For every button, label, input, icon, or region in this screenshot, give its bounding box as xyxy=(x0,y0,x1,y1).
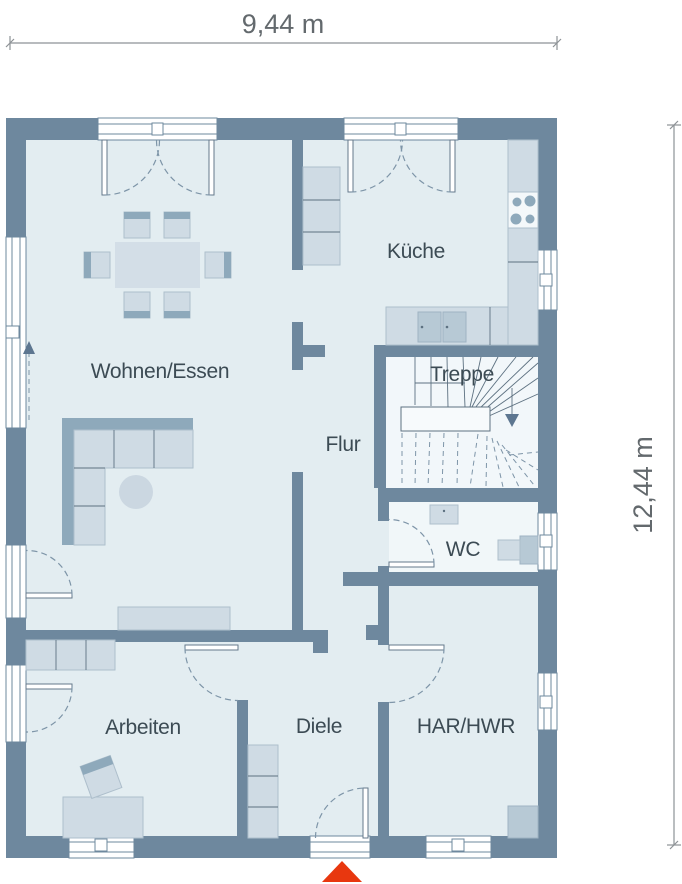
wall-foyer-stub xyxy=(366,625,378,640)
window-utility xyxy=(538,673,557,730)
wall-exterior-right xyxy=(538,118,557,858)
window-handle-icon xyxy=(395,123,406,135)
wall-office-foyer xyxy=(237,700,248,838)
window-kitchen xyxy=(538,250,557,310)
wall-kitchen-living xyxy=(292,140,303,270)
coffee-table xyxy=(119,475,153,509)
floor-plan-svg: 9,44 m 12,44 m xyxy=(0,0,682,884)
room-label-staircase: Treppe xyxy=(430,363,494,386)
kitchen-counter-right xyxy=(508,140,538,345)
dimension-right: 12,44 m xyxy=(628,121,681,849)
sideboard-living xyxy=(118,607,230,630)
office-desk xyxy=(63,797,143,838)
office-cabinet xyxy=(26,640,115,670)
dining-table xyxy=(115,242,200,288)
wc-toilet xyxy=(498,536,538,564)
wall-foyer-utility-lower xyxy=(378,702,389,838)
window-wc xyxy=(538,513,557,570)
wall-living-office-endcap xyxy=(313,630,328,653)
window-handle-icon xyxy=(6,326,19,338)
dimension-width-label: 9,44 m xyxy=(242,9,325,39)
kitchen-pantry-shelf xyxy=(303,167,340,265)
wall-stub-t-arm xyxy=(303,345,325,357)
window-handle-icon xyxy=(452,839,464,851)
room-label-foyer: Diele xyxy=(296,715,342,738)
entrance-arrow-icon xyxy=(322,861,362,882)
staircase-landing xyxy=(401,407,490,431)
window-utility-bottom xyxy=(426,836,491,858)
wall-wc-bottom xyxy=(343,572,540,586)
wall-kitchen-bottom xyxy=(374,345,540,357)
wall-wc-left-upper xyxy=(378,502,389,521)
room-label-kitchen: Küche xyxy=(387,240,445,263)
window-handle-icon xyxy=(540,274,552,286)
wall-hall-living xyxy=(292,472,303,632)
room-label-wc: WC xyxy=(446,538,481,561)
window-handle-icon xyxy=(540,696,552,708)
wall-wc-top xyxy=(378,488,540,502)
window-handle-icon xyxy=(95,839,107,851)
utility-appliance xyxy=(508,806,538,838)
window-handle-icon xyxy=(540,535,552,547)
room-label-office: Arbeiten xyxy=(105,716,181,739)
foyer-wardrobe xyxy=(248,745,278,838)
wc-sink xyxy=(430,505,458,524)
window-handle-icon xyxy=(152,123,163,135)
room-label-utility: HAR/HWR xyxy=(417,715,515,738)
wall-stairs-left xyxy=(374,345,386,488)
window-office-bottom xyxy=(69,836,134,858)
wall-exterior-top xyxy=(6,118,557,140)
dimension-top: 9,44 m xyxy=(6,9,561,50)
room-label-living-dining: Wohnen/Essen xyxy=(91,360,229,383)
wall-stub-t xyxy=(292,322,303,370)
wall-exterior-left xyxy=(6,118,26,858)
room-label-hallway: Flur xyxy=(326,433,361,456)
floorplan-page: 9,44 m 12,44 m xyxy=(0,0,682,884)
wall-foyer-utility-upper xyxy=(378,586,389,645)
dimension-height-label: 12,44 m xyxy=(628,436,658,534)
